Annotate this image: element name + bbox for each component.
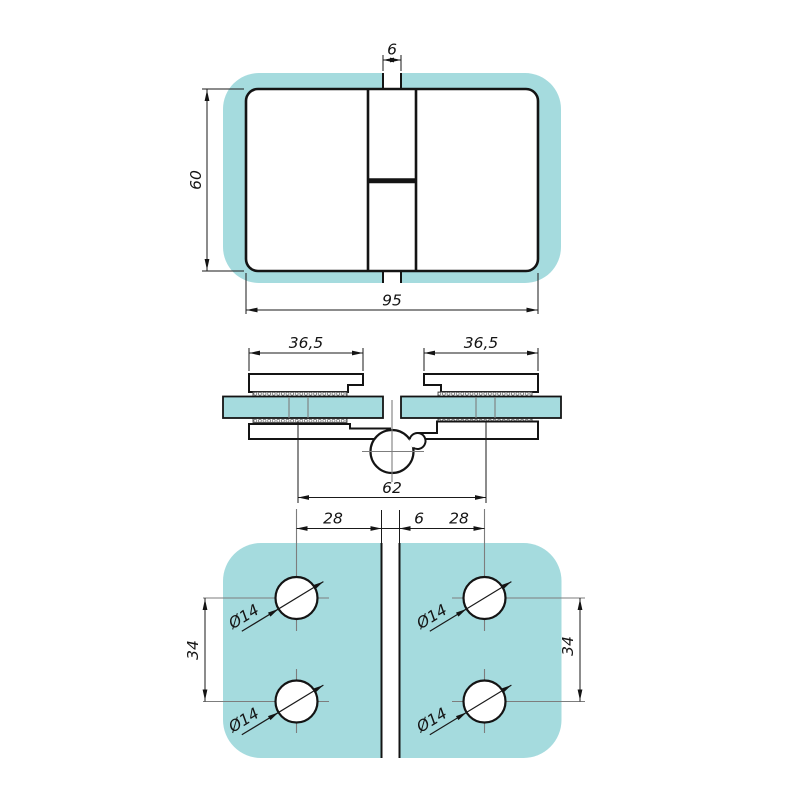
section-view: 36,5 36,5 62 [223, 334, 561, 503]
dim-arrow [247, 308, 258, 313]
dim-arrow [371, 526, 382, 531]
base-plate-left [249, 424, 390, 439]
dim-arrow [249, 351, 260, 356]
hinge-technical-drawing: 6 60 95 36,5 36 [0, 0, 800, 800]
dim-label-pitch-right: 34 [559, 636, 577, 656]
dim-arrow [203, 690, 208, 701]
dim-arrow [352, 351, 363, 356]
extension-lines-gap-back [382, 510, 400, 543]
dim-label-height: 60 [187, 170, 205, 190]
dim-arrow [400, 526, 411, 531]
dim-arrow [475, 495, 486, 500]
dim-label-plate-right: 36,5 [464, 334, 499, 352]
dim-arrow [205, 259, 210, 270]
dim-label-plate-left: 36,5 [289, 334, 324, 352]
glass-gap-top [384, 72, 400, 90]
glass-panel-section-right [401, 397, 561, 419]
dim-label-hole-span: 62 [382, 479, 402, 497]
dim-arrow [474, 526, 485, 531]
dim-label-pitch-left: 34 [184, 640, 202, 660]
dim-arrow [203, 599, 208, 610]
dim-arrow [578, 690, 583, 701]
dim-label-hole-offset-right: 28 [449, 510, 469, 528]
dim-label-hole-offset-left: 28 [323, 510, 343, 528]
dim-arrow [527, 351, 538, 356]
dim-label-width: 95 [382, 292, 402, 310]
front-view: 6 60 95 [187, 41, 561, 315]
dim-arrow [527, 308, 538, 313]
glass-gap-edges-back [382, 543, 400, 758]
back-view: 28 6 28 34 34 Ø14 Ø14 Ø14 Ø14 [184, 509, 585, 758]
dim-arrow [205, 90, 210, 101]
cover-plate-right [424, 374, 538, 392]
glass-panel-section-left [223, 397, 383, 419]
dim-arrow [578, 599, 583, 610]
dim-arrow [297, 526, 308, 531]
dim-arrow [424, 351, 435, 356]
cover-plate-left [249, 374, 363, 392]
dim-arrow [298, 495, 309, 500]
dim-label-gap-top: 6 [387, 41, 397, 59]
dim-label-gap-back: 6 [414, 510, 424, 528]
base-plate-right [418, 422, 539, 440]
